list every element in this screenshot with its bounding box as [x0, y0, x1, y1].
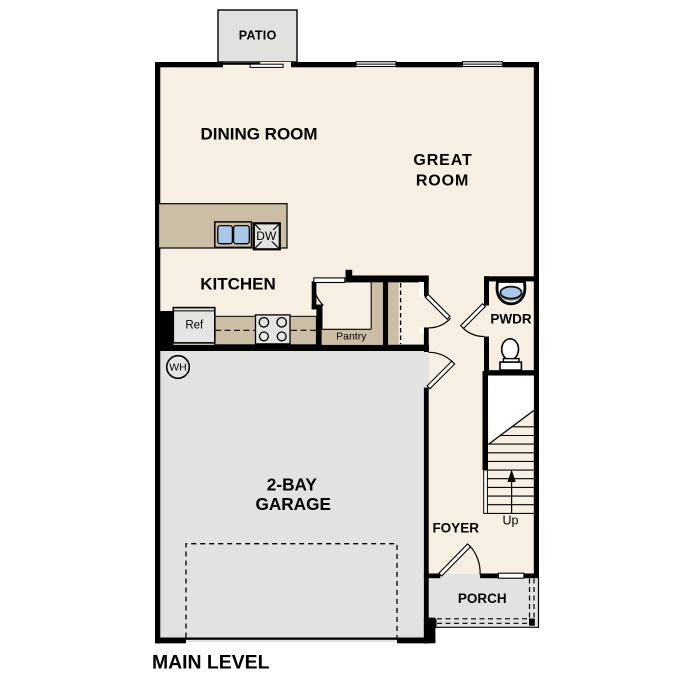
svg-text:GARAGE: GARAGE — [255, 494, 330, 514]
svg-text:PORCH: PORCH — [458, 591, 507, 606]
svg-text:Ref: Ref — [185, 319, 204, 331]
svg-text:PATIO: PATIO — [239, 29, 277, 43]
svg-text:DINING ROOM: DINING ROOM — [200, 124, 317, 143]
svg-text:KITCHEN: KITCHEN — [200, 274, 276, 293]
svg-text:2-BAY: 2-BAY — [267, 474, 318, 494]
svg-text:MAIN LEVEL: MAIN LEVEL — [152, 651, 270, 673]
svg-text:DW: DW — [256, 229, 277, 243]
svg-text:GREAT: GREAT — [413, 152, 472, 169]
svg-text:ROOM: ROOM — [416, 173, 469, 190]
svg-text:PWDR: PWDR — [490, 312, 531, 327]
svg-text:FOYER: FOYER — [432, 521, 479, 536]
svg-text:Pantry: Pantry — [336, 330, 367, 342]
svg-text:Up: Up — [503, 514, 519, 528]
svg-text:WH: WH — [169, 362, 187, 374]
